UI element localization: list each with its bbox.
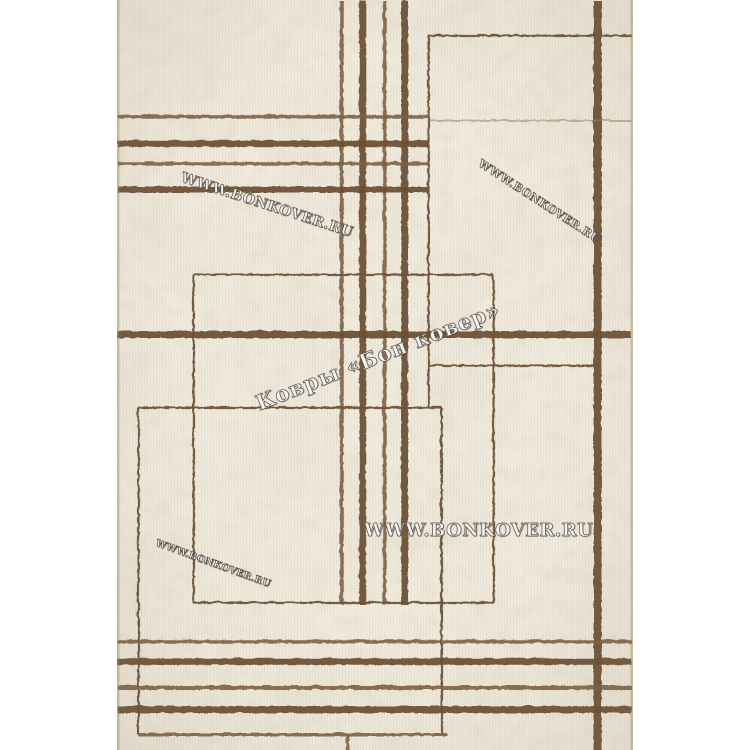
rug-pile-ribs [117,0,633,750]
rug-product-photo: WWW.BONKOVER.RUWWW.BONKOVER.RUКовры «Бон… [0,0,750,750]
rug-right-edge [631,0,634,750]
rug-image [0,0,750,750]
rug-left-edge [117,0,120,750]
